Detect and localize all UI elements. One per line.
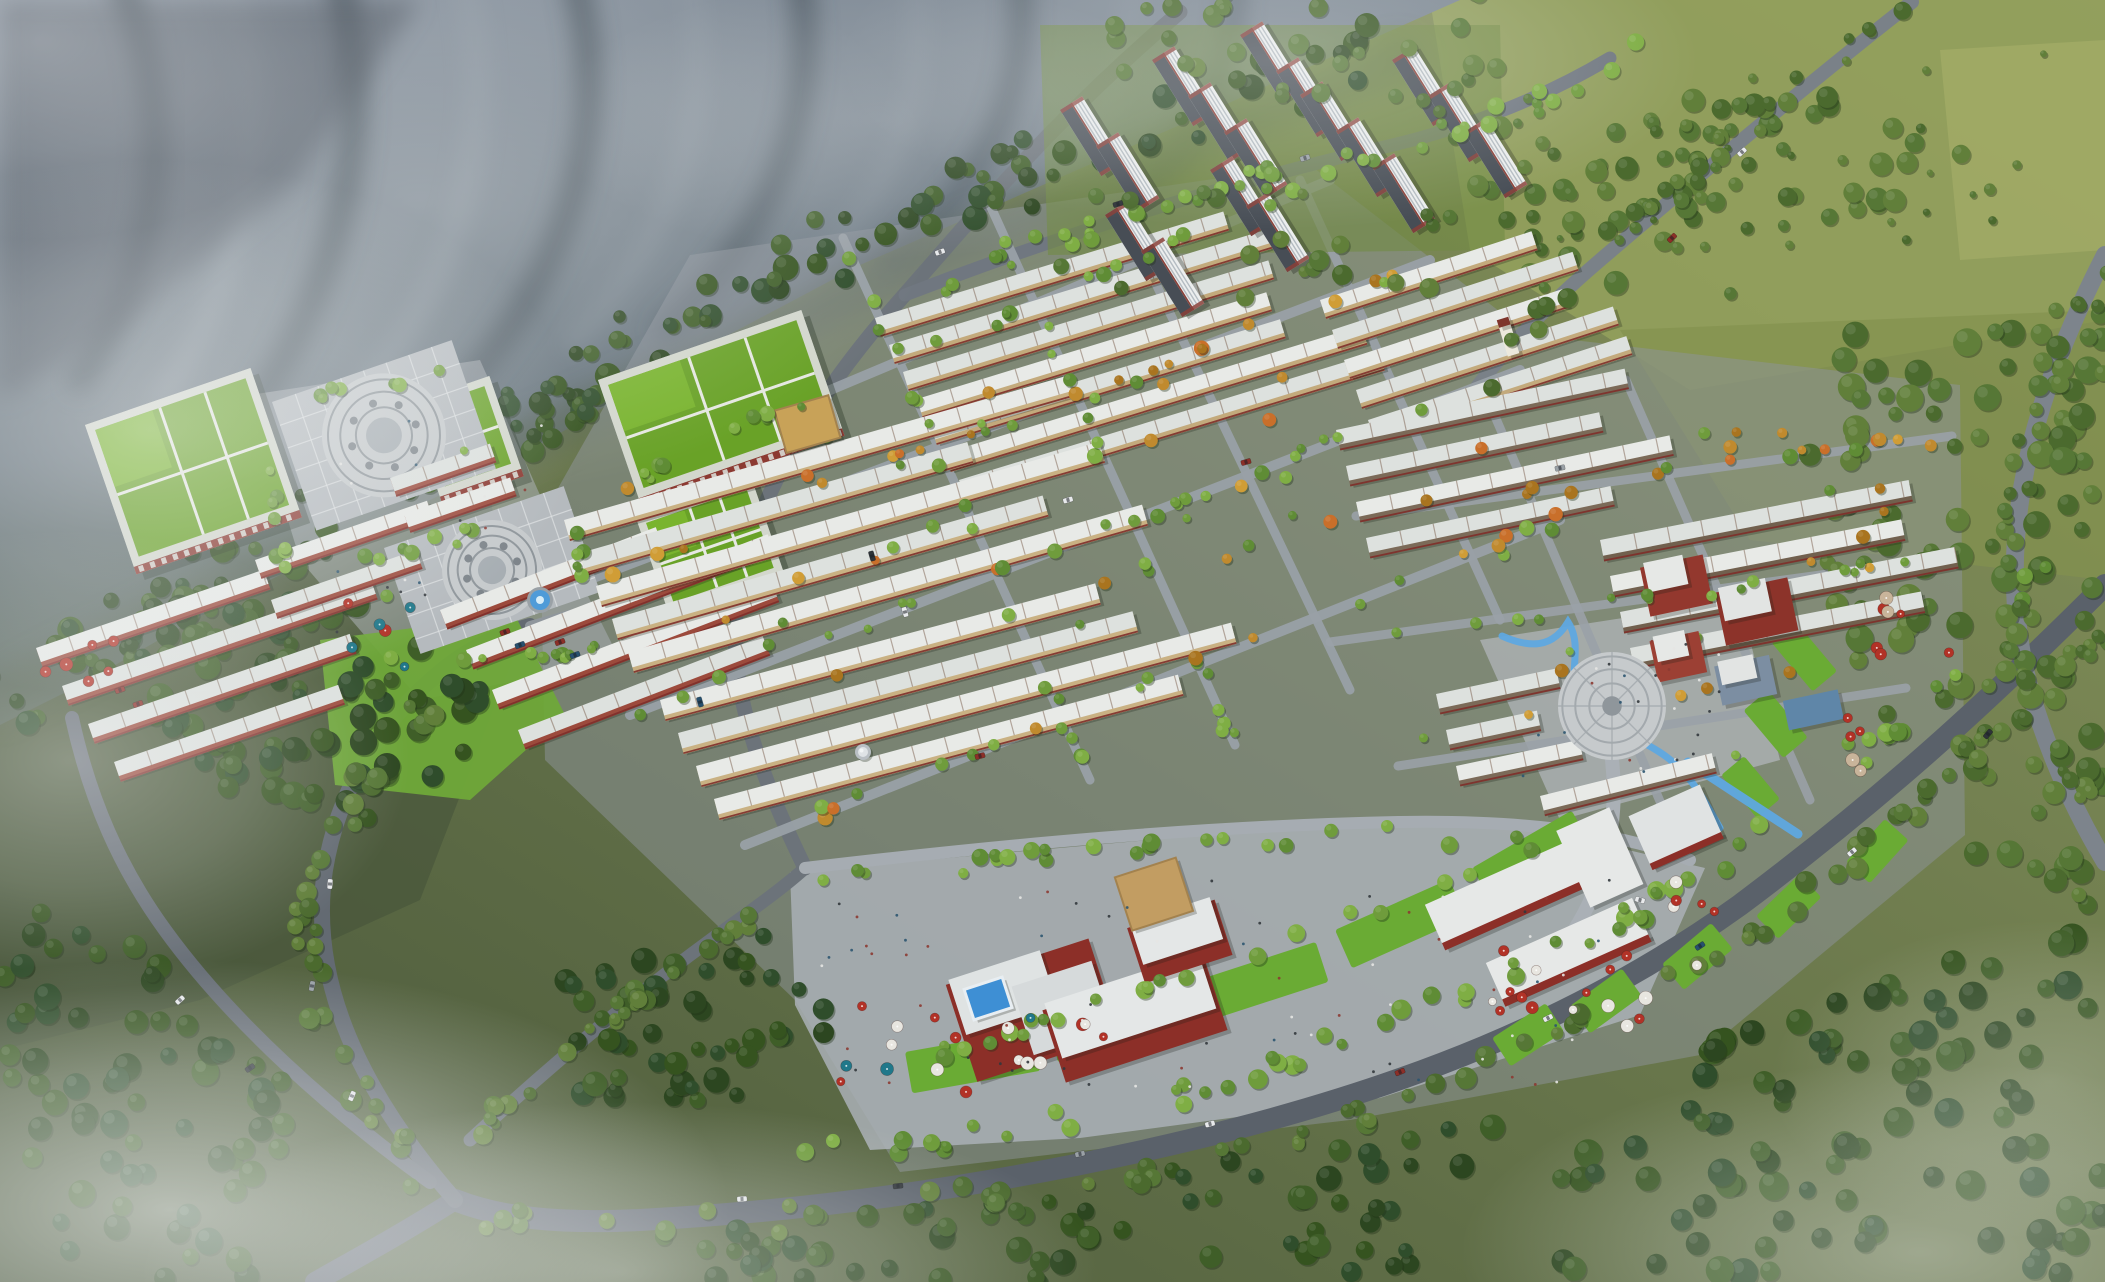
- aerial-render-figure: Aerial bird's-eye architectural renderin…: [0, 0, 2105, 1282]
- aerial-render-canvas: [0, 0, 2105, 1282]
- campus-fountain: [527, 587, 553, 613]
- village-circular-plaza: [1558, 652, 1666, 760]
